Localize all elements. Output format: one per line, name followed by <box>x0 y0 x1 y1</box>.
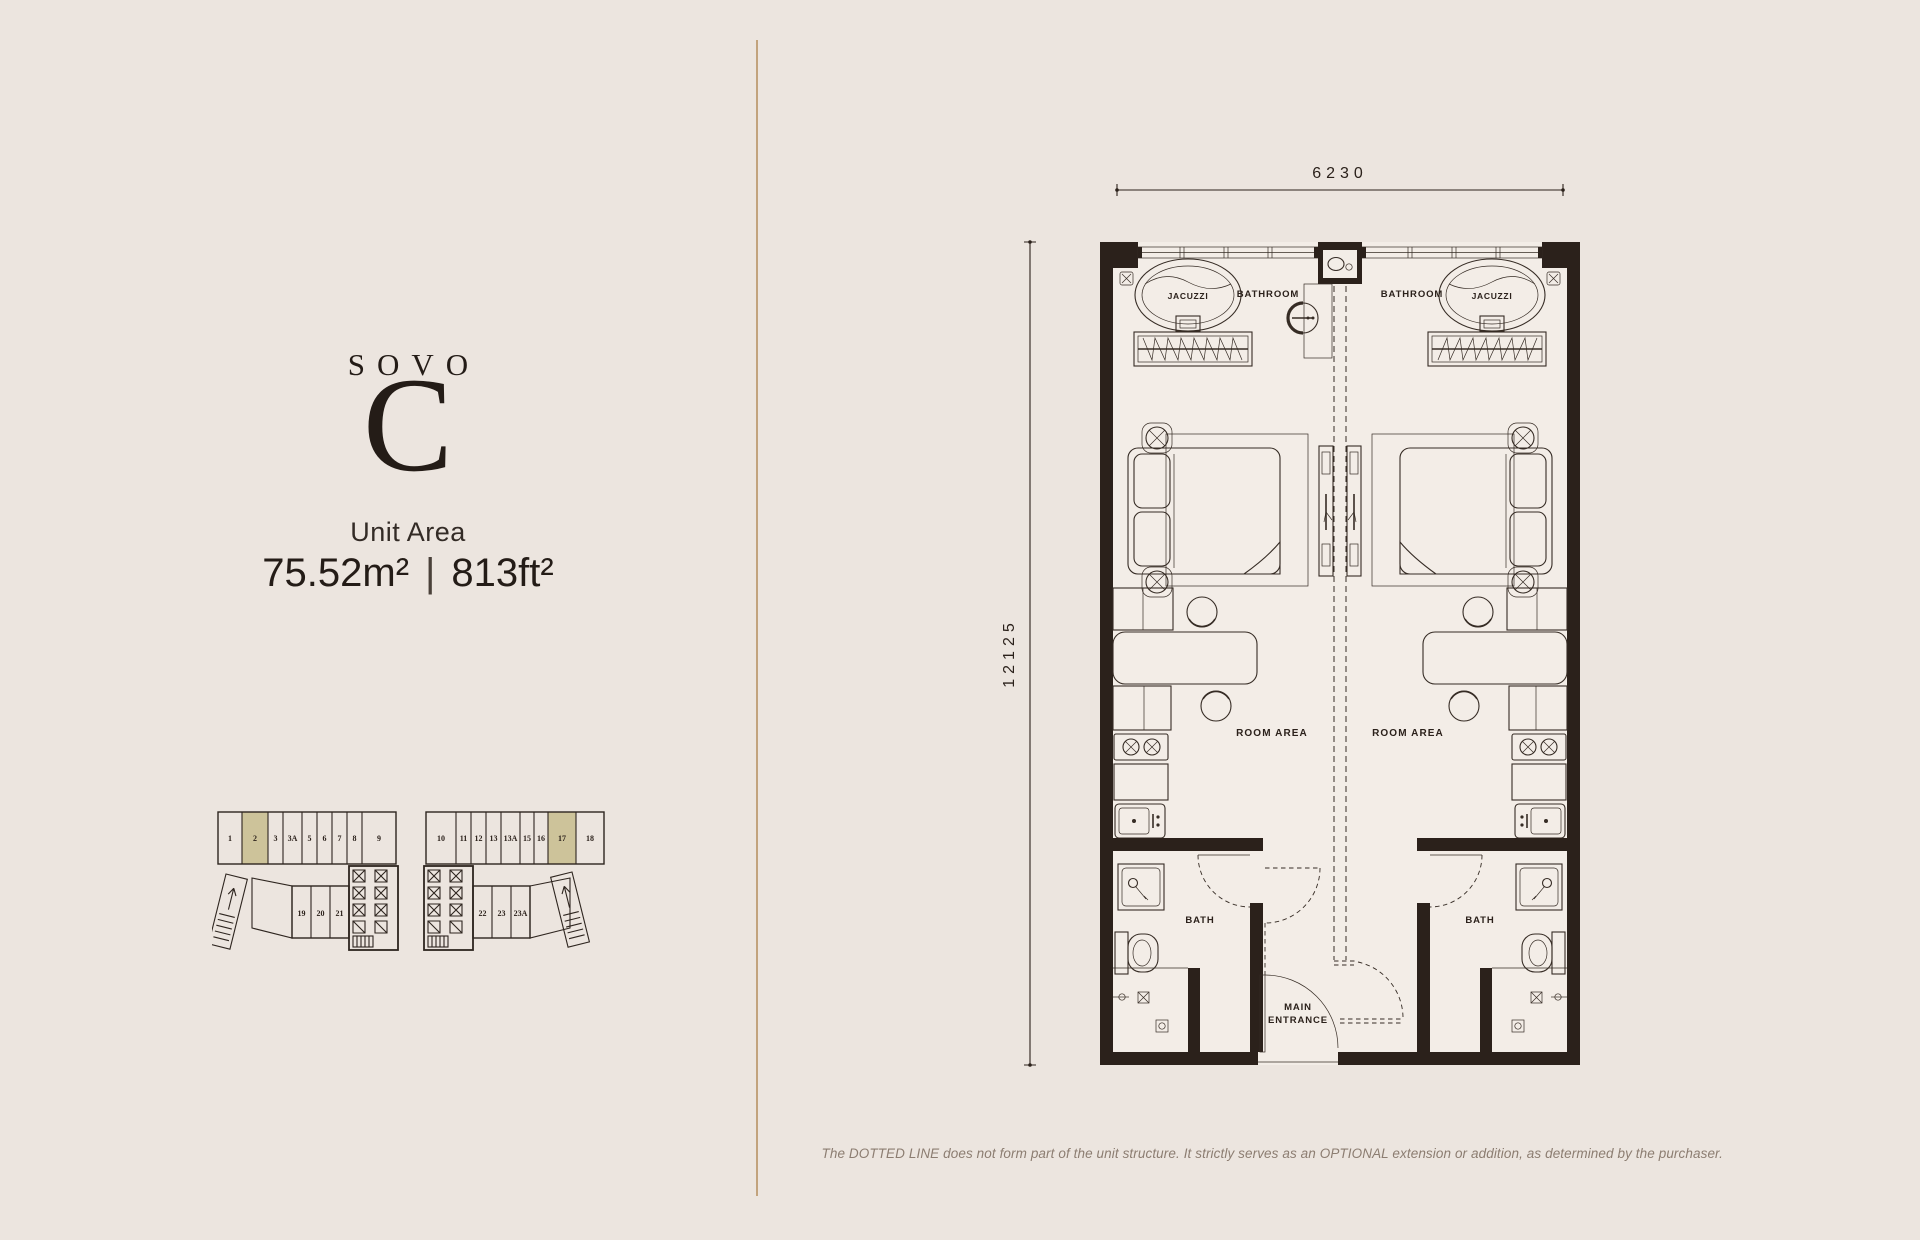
label-main-entrance: MAIN <box>1284 1002 1312 1013</box>
keyplan-unit-cell: 12 <box>475 834 483 843</box>
page: SOVO C Unit Area 75.52m² | 813ft² 1 2 3 … <box>0 0 1920 1240</box>
key-plan-right-block: 10 11 12 13 13A 15 16 17 18 22 23 23A <box>420 808 610 958</box>
label-jacuzzi-right: JACUZZI <box>1472 291 1513 301</box>
keyplan-unit-cell: 23 <box>498 909 506 918</box>
keyplan-unit-cell: 9 <box>377 834 381 843</box>
keyplan-connector <box>252 878 292 938</box>
keyplan-unit-cell: 3A <box>288 834 298 843</box>
label-jacuzzi-left: JACUZZI <box>1168 291 1209 301</box>
bottom-wall <box>1100 1052 1580 1065</box>
keyplan-unit-cell: 1 <box>228 834 232 843</box>
area-separator: | <box>425 551 435 596</box>
keyplan-unit-cell-highlighted: 2 <box>253 834 257 843</box>
label-bath-left: BATH <box>1185 915 1214 926</box>
keyplan-unit-cell: 15 <box>523 834 531 843</box>
unit-letter: C <box>208 358 608 493</box>
keyplan-unit-cell: 16 <box>537 834 545 843</box>
keyplan-unit-cell: 23A <box>514 909 528 918</box>
disclaimer-text: The DOTTED LINE does not form part of th… <box>822 1146 1724 1161</box>
floor-plan-area: 6230 12125 <box>980 128 1620 1093</box>
keyplan-unit-cell: 10 <box>437 834 445 843</box>
bath-wall-stub <box>1188 968 1200 1052</box>
keyplan-unit-cell: 13A <box>504 834 518 843</box>
dim-height-text: 12125 <box>1001 618 1018 688</box>
keyplan-unit-cell: 5 <box>308 834 312 843</box>
label-bathroom-right: BATHROOM <box>1381 289 1443 300</box>
keyplan-unit-cell: 20 <box>317 909 325 918</box>
keyplan-unit-cell: 18 <box>586 834 594 843</box>
lift-core-icon <box>349 866 398 950</box>
label-bath-right: BATH <box>1465 915 1494 926</box>
keyplan-unit-cell: 3 <box>274 834 278 843</box>
key-plan-left-block: 1 2 3 3A 5 6 7 8 9 19 20 21 <box>212 808 402 958</box>
side-wall <box>1100 242 1113 1065</box>
label-room-area-right: ROOM AREA <box>1372 728 1444 739</box>
dim-width-text: 6230 <box>1312 165 1368 182</box>
floor-plan-svg: 6230 12125 <box>980 128 1620 1088</box>
escalator-ramp-icon <box>212 874 247 949</box>
label-room-area-left: ROOM AREA <box>1236 728 1308 739</box>
entrance-gap <box>1258 1052 1338 1065</box>
dimension-width: 6230 <box>1115 165 1565 196</box>
area-metric: 75.52m² <box>262 551 409 596</box>
keyplan-unit-cell: 6 <box>323 834 327 843</box>
bath-wall <box>1250 903 1263 1052</box>
unit-area-value: 75.52m² | 813ft² <box>208 551 608 596</box>
dimension-height: 12125 <box>1001 240 1036 1067</box>
vertical-divider <box>756 40 758 1196</box>
bath-wall <box>1113 838 1263 851</box>
label-bathroom-left: BATHROOM <box>1237 289 1299 300</box>
keyplan-unit-cell: 21 <box>336 909 344 918</box>
keyplan-unit-cell: 7 <box>338 834 342 843</box>
keyplan-unit-cell: 22 <box>479 909 487 918</box>
label-main-entrance: ENTRANCE <box>1268 1015 1328 1026</box>
unit-area-label: Unit Area <box>208 517 608 548</box>
keyplan-unit-cell: 11 <box>460 834 468 843</box>
keyplan-unit-cell: 19 <box>298 909 306 918</box>
keyplan-unit-cell: 8 <box>353 834 357 843</box>
keyplan-unit-cell-highlighted: 17 <box>558 834 566 843</box>
corner-column <box>1100 242 1138 268</box>
lift-core-icon <box>424 866 473 950</box>
keyplan-unit-cell: 13 <box>490 834 498 843</box>
area-imperial: 813ft² <box>451 551 553 596</box>
